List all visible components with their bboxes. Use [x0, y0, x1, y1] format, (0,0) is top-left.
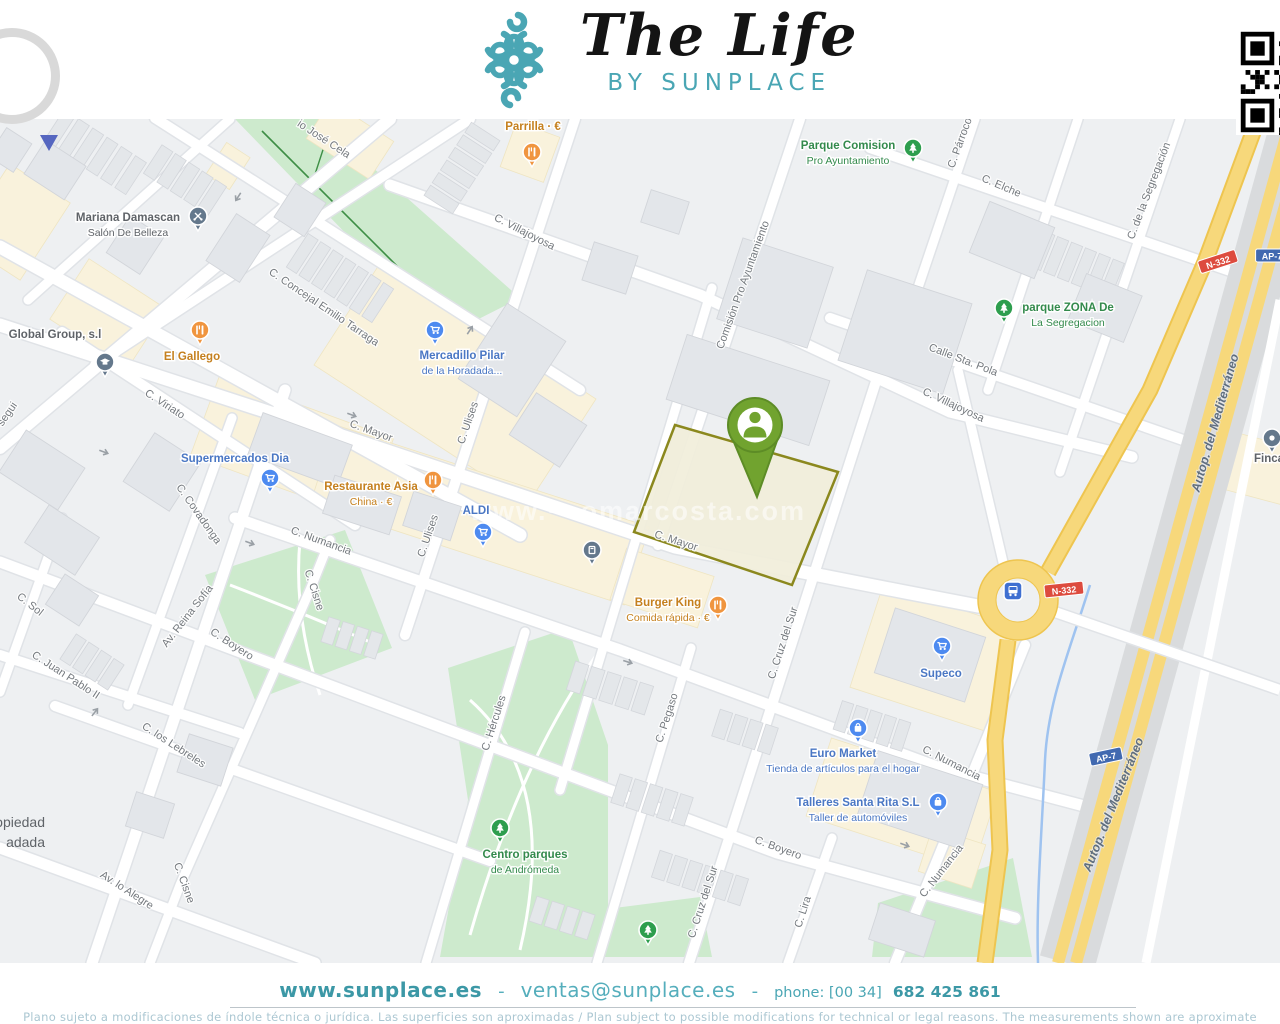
header: The Life BY SUNPLACE	[0, 0, 1280, 119]
parque-comision-label: Pro Ayuntamiento	[807, 155, 890, 167]
separator: -	[498, 981, 505, 1002]
phone-label: phone: [00 34]	[774, 985, 882, 1001]
centro-parques-andromeda-label: Centro parques	[483, 849, 568, 861]
road-badge-ap-7: AP-7	[1256, 249, 1280, 262]
supermercados-dia-label: Supermercados Dia	[181, 453, 290, 465]
aldi-label: ALDI	[463, 505, 490, 517]
restaurante-asia-label: China · €	[350, 496, 393, 508]
website-link[interactable]: www.sunplace.es	[279, 978, 482, 1002]
global-group-label: Global Group, s.l	[9, 329, 102, 341]
cropped-gray-label-label: adada	[6, 834, 45, 850]
phone-number: 682 425 861	[893, 983, 1001, 1001]
burger-king-label: Burger King	[635, 597, 701, 609]
divider-line	[230, 1007, 1136, 1008]
separator: -	[752, 981, 759, 1002]
svg-text:AP-7: AP-7	[1262, 252, 1280, 262]
footer: www.sunplace.es - ventas@sunplace.es - p…	[0, 963, 1280, 1024]
logo-subtitle: BY SUNPLACE	[580, 70, 858, 96]
parque-comision-label: Parque Comision	[801, 140, 896, 152]
bus-stop-icon	[1004, 582, 1022, 600]
talleres-santa-rita-label: Talleres Santa Rita S.L	[796, 797, 919, 809]
restaurante-asia-label: Restaurante Asia	[324, 481, 418, 493]
decorative-ring	[0, 28, 60, 124]
map-canvas: www.···omarcosta.com io José CelaC. Conc…	[0, 119, 1280, 963]
euro-market-label: Euro Market	[810, 748, 877, 760]
burger-king-label: Comida rápida · €	[626, 612, 710, 624]
disclaimer-text: Plano sujeto a modificaciones de índole …	[0, 1010, 1280, 1024]
contact-line: www.sunplace.es - ventas@sunplace.es - p…	[0, 978, 1280, 1002]
email-link[interactable]: ventas@sunplace.es	[521, 978, 736, 1002]
logo-title: The Life	[580, 4, 858, 68]
el-gallego-label: El Gallego	[164, 351, 220, 363]
mercadillo-label: Mercadillo Pilar	[419, 350, 505, 362]
centro-parques-andromeda-label: de Andrómeda	[491, 864, 559, 876]
cropped-gray-label-label: opiedad	[0, 814, 45, 830]
mercadillo-label: de la Horadada...	[422, 365, 503, 377]
parque-zona-segregacion-label: parque ZONA De	[1022, 302, 1114, 314]
euro-market-label: Tienda de artículos para el hogar	[766, 763, 920, 775]
logo: The Life BY SUNPLACE	[462, 4, 858, 116]
mariana-damascan-label: Mariana Damascan	[76, 212, 180, 224]
parrilla-label: Parrilla · €	[505, 121, 561, 133]
mariana-damascan-label: Salón De Belleza	[88, 227, 169, 239]
watermark: www.···omarcosta.com	[469, 496, 806, 526]
supeco-label: Supeco	[920, 668, 962, 680]
flyer-page: The Life BY SUNPLACE www.···omarcosta.co…	[0, 0, 1280, 1024]
logo-knot-icon	[462, 4, 566, 116]
parque-zona-segregacion-label: La Segregacion	[1031, 317, 1105, 329]
qr-code	[1236, 27, 1280, 135]
finca-label: Finca	[1254, 453, 1280, 465]
person-icon	[749, 412, 760, 423]
talleres-santa-rita-label: Taller de automóviles	[809, 812, 908, 824]
